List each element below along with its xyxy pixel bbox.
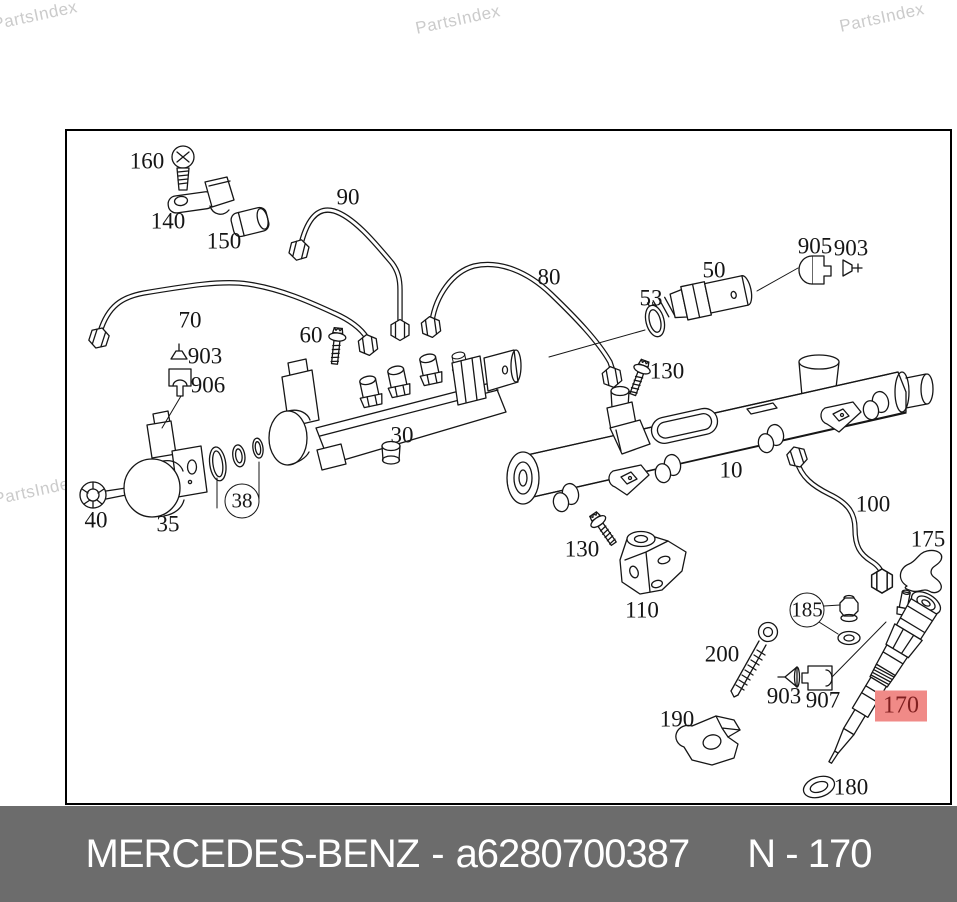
part-label-80[interactable]: 80 xyxy=(538,266,561,289)
part-label-903[interactable]: 903 xyxy=(767,685,802,708)
part-label-60[interactable]: 60 xyxy=(300,324,323,347)
part-label-70[interactable]: 70 xyxy=(179,309,202,332)
part-label-130[interactable]: 130 xyxy=(650,360,685,383)
part-label-140[interactable]: 140 xyxy=(151,210,186,233)
part-label-130[interactable]: 130 xyxy=(565,538,600,561)
part-label-35[interactable]: 35 xyxy=(157,513,180,536)
footer-caption-bar: MERCEDES-BENZ - a6280700387 N - 170 xyxy=(0,806,957,902)
brand-name: MERCEDES-BENZ xyxy=(86,832,420,877)
part-label-40[interactable]: 40 xyxy=(85,509,108,532)
page-reference: N - 170 xyxy=(747,832,871,877)
part-label-185[interactable]: 185 xyxy=(790,593,825,628)
part-label-170[interactable]: 170 xyxy=(875,691,927,722)
part-label-30[interactable]: 30 xyxy=(391,424,414,447)
part-label-190[interactable]: 190 xyxy=(660,708,695,731)
parts-catalog-page: PartsIndexPartsIndexPartsIndexPartsIndex… xyxy=(0,0,957,902)
part-label-905[interactable]: 905 xyxy=(798,235,833,258)
label-layer: 1601401509080706050539059031309039063010… xyxy=(0,0,957,902)
part-label-150[interactable]: 150 xyxy=(207,230,242,253)
part-label-906[interactable]: 906 xyxy=(191,374,226,397)
part-label-50[interactable]: 50 xyxy=(703,259,726,282)
part-label-100[interactable]: 100 xyxy=(856,493,891,516)
part-label-10[interactable]: 10 xyxy=(720,459,743,482)
part-label-110[interactable]: 110 xyxy=(625,599,659,622)
part-label-907[interactable]: 907 xyxy=(806,689,841,712)
part-label-903[interactable]: 903 xyxy=(188,345,223,368)
part-label-53[interactable]: 53 xyxy=(640,287,663,310)
part-label-175[interactable]: 175 xyxy=(911,528,946,551)
part-label-90[interactable]: 90 xyxy=(337,186,360,209)
part-label-160[interactable]: 160 xyxy=(130,150,165,173)
part-label-180[interactable]: 180 xyxy=(834,776,869,799)
part-label-200[interactable]: 200 xyxy=(705,643,740,666)
part-label-38[interactable]: 38 xyxy=(225,484,260,519)
part-number: a6280700387 xyxy=(456,832,690,877)
separator: - xyxy=(431,832,443,877)
part-label-903[interactable]: 903 xyxy=(834,237,869,260)
footer-part-title: MERCEDES-BENZ - a6280700387 xyxy=(86,832,690,877)
